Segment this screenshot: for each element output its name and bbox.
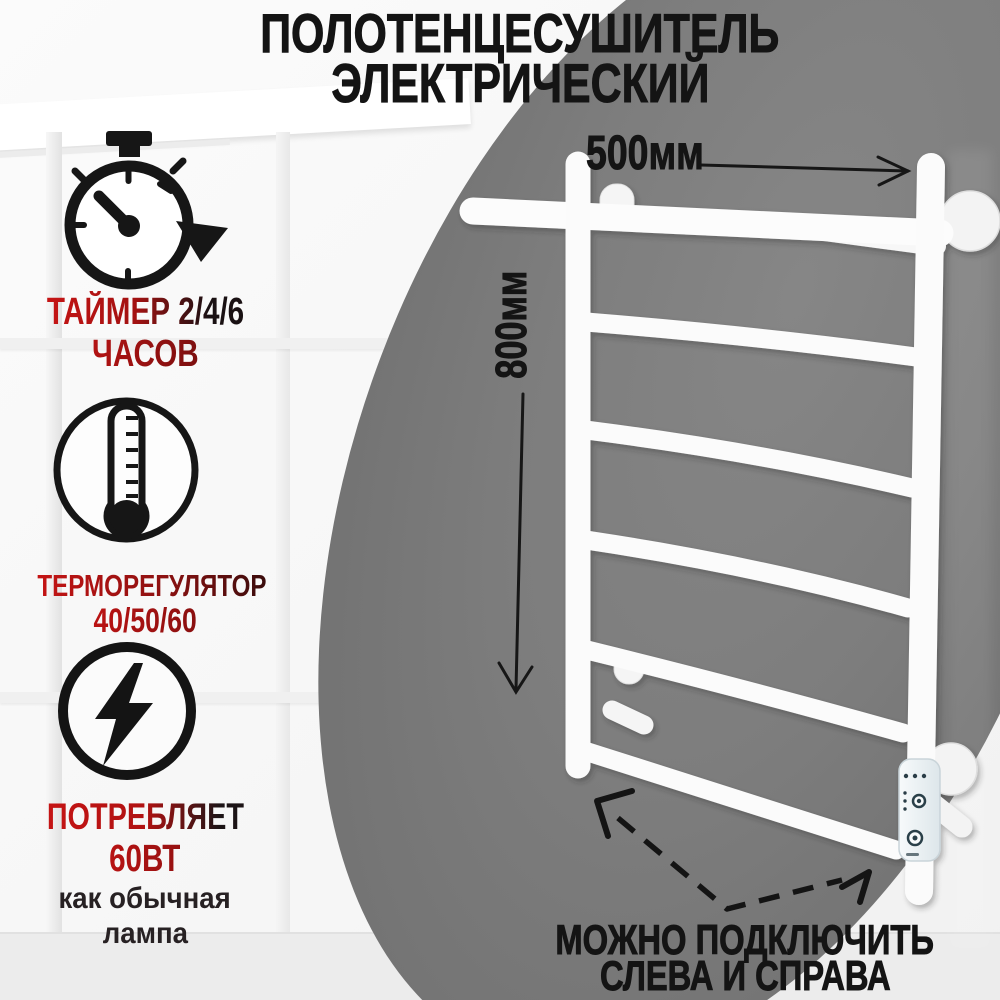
towel-rail-illustration — [0, 0, 1000, 1000]
towel-rail-rungs — [586, 322, 916, 850]
width-dimension-label: 500мм — [586, 126, 737, 181]
connection-options-arrows — [597, 791, 869, 909]
connection-caption-line-2: СЛЕВА И СПРАВА — [495, 958, 995, 994]
connection-caption: МОЖНО ПОДКЛЮЧИТЬ СЛЕВА И СПРАВА — [495, 922, 995, 994]
top-front-bar — [473, 211, 940, 233]
height-dimension-arrow — [499, 394, 532, 692]
height-dimension-label: 800мм — [490, 284, 534, 394]
product-marketing-image: ПОЛОТЕНЦЕСУШИТЕЛЬ ЭЛЕКТРИЧЕСКИЙ ТАЙМЕР 2… — [0, 0, 1000, 1000]
controller-panel — [899, 759, 940, 861]
